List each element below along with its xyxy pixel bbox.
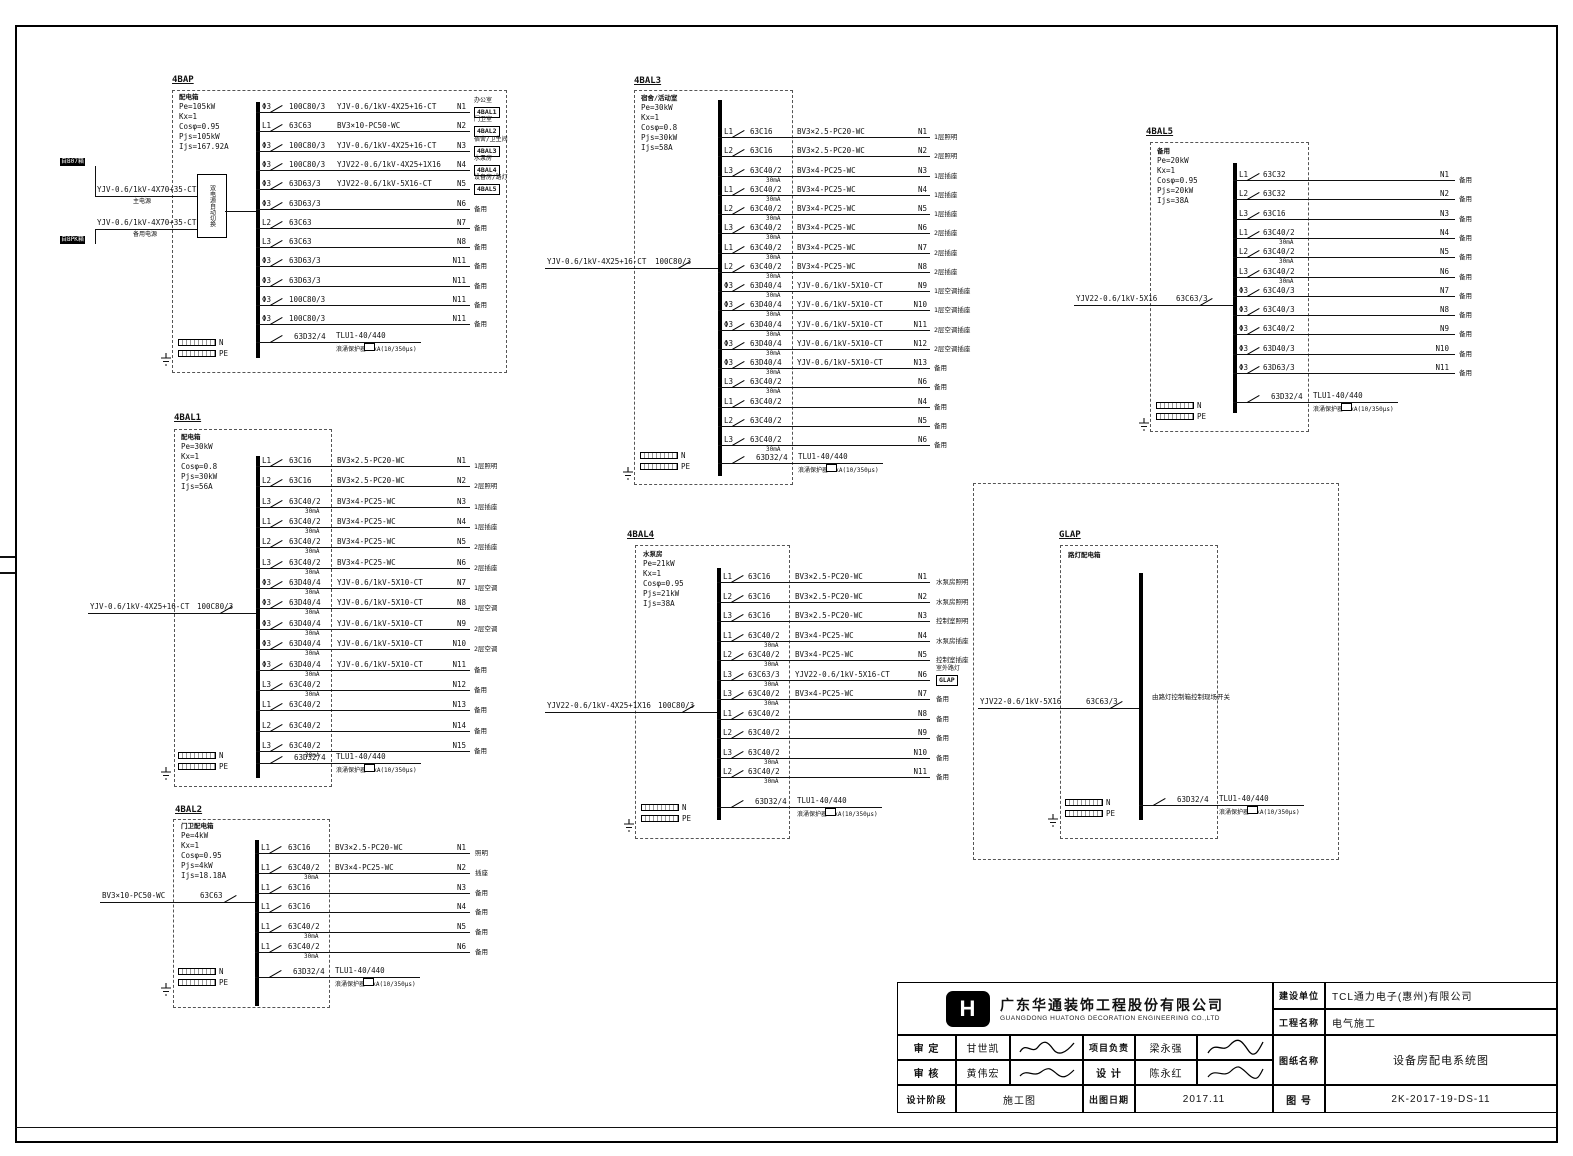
circuit-line (256, 547, 470, 548)
rcd-label: 30mA (766, 197, 780, 203)
incoming-cable-label: YJV22-0.6/1kV-4X25+1X16 (547, 702, 651, 710)
incoming-breaker-label: 63C63/3 (1086, 698, 1118, 706)
breaker-label: 63C40/2 (748, 632, 780, 640)
dest-box: 4BAL5 (474, 184, 500, 195)
surge-device-label: TLU1-40/440 (336, 753, 386, 761)
pe-bar (178, 350, 216, 357)
breaker-label: 100C80/3 (289, 103, 325, 111)
phase-label: Φ3 (724, 359, 733, 367)
panel-name: 门卫配电箱 (181, 823, 214, 830)
circuit-line (256, 507, 470, 508)
bus-bar (256, 102, 260, 358)
breaker-label: 63C16 (1263, 210, 1286, 218)
breaker-label: 63D63/3 (289, 257, 321, 265)
cable-label: BV3×2.5-PC20-WC (337, 477, 405, 485)
cable-label: BV3×2.5-PC20-WC (795, 573, 863, 581)
circuit-number: N13 (432, 701, 466, 709)
breaker-label: 63C40/2 (750, 263, 782, 271)
circuit-number: N11 (893, 768, 927, 776)
phase-label: Φ3 (262, 661, 271, 669)
load-label: 水泵房照明 (936, 579, 969, 586)
circuit-line (256, 588, 470, 589)
load-label: 水泵房插座 (936, 638, 969, 645)
circuit-number: N7 (432, 219, 466, 227)
load-label: 备用 (1459, 235, 1472, 242)
margin-tick (0, 572, 15, 574)
pe-bar (178, 979, 216, 986)
breaker-label: 63C40/2 (748, 651, 780, 659)
panel-header-line: Cosφ=0.95 (1157, 177, 1198, 185)
cable-label: YJV-0.6/1kV-5X10-CT (337, 579, 423, 587)
surge-note: 浪涌保护器40kA(10/350μs) (335, 982, 416, 988)
circuit-line (717, 621, 930, 622)
breaker-label: 63D63/3 (289, 277, 321, 285)
phase-label: L1 (1239, 229, 1248, 237)
circuit-line (718, 291, 930, 292)
breaker-label: 63C40/2 (750, 244, 782, 252)
circuit-number: N6 (893, 436, 927, 444)
breaker-label: 63D63/3 (1263, 364, 1295, 372)
circuit-number: N9 (1415, 325, 1449, 333)
circuit-number: N3 (1415, 210, 1449, 218)
rcd-label: 30mA (1279, 259, 1293, 265)
circuit-number: N8 (432, 599, 466, 607)
load-label: 1层插座 (934, 192, 957, 199)
panel-name: 水泵房 (643, 551, 663, 558)
panel-header-line: Cosφ=0.8 (181, 463, 217, 471)
circuit-number: N6 (1415, 268, 1449, 276)
load-label: 备用 (474, 748, 487, 755)
load-label: 备用 (936, 696, 949, 703)
surge-device-icon (1341, 403, 1352, 411)
panel-header-line: Pjs=4kW (181, 862, 213, 870)
surge-breaker-label: 63D32/4 (294, 333, 326, 341)
phase-label: Φ3 (262, 180, 271, 188)
pe-bar-label: PE (681, 463, 690, 471)
circuit-number: N3 (893, 612, 927, 620)
surge-line (1233, 402, 1398, 403)
breaker-label: 63C16 (750, 147, 773, 155)
load-label: 备用 (474, 206, 487, 213)
breaker-label: 63C16 (748, 612, 771, 620)
load-label: 2层空调插座 (934, 327, 970, 334)
breaker-label: 63D40/4 (289, 599, 321, 607)
phase-label: L2 (262, 722, 271, 730)
n-bar (1156, 402, 1194, 409)
rcd-label: 30mA (766, 216, 780, 222)
load-label: 备用 (934, 384, 947, 391)
project-lead-name: 梁永强 (1135, 1035, 1197, 1060)
surge-line (718, 463, 883, 464)
load-label: 备用 (1459, 351, 1472, 358)
signature-icon (1017, 1039, 1077, 1057)
phase-label: L2 (723, 768, 732, 776)
surge-breaker-label: 63D32/4 (756, 454, 788, 462)
breaker-label: 63C40/2 (289, 701, 321, 709)
circuit-line (718, 176, 930, 177)
rcd-label: 30mA (766, 332, 780, 338)
rcd-label: 30mA (764, 701, 778, 707)
load-label: 备用 (1459, 370, 1472, 377)
panel-header-line: Ijs=38A (1157, 197, 1189, 205)
circuit-line (1233, 334, 1455, 335)
n-bar-label: N (219, 752, 224, 760)
circuit-number: N1 (893, 573, 927, 581)
load-label: 1层空调插座 (934, 307, 970, 314)
cable-label: YJV22-0.6/1kV-4X25+1X16 (337, 161, 441, 169)
panel-header-line: Cosφ=0.95 (181, 852, 222, 860)
breaker-label: 63C40/2 (748, 729, 780, 737)
pe-bar (641, 815, 679, 822)
phase-label: Φ3 (262, 142, 271, 150)
issue-date-label: 出图日期 (1083, 1085, 1135, 1113)
rcd-label: 30mA (1279, 240, 1293, 246)
circuit-line (717, 777, 930, 778)
project-name-label: 工程名称 (1273, 1009, 1325, 1035)
panel-header-line: Pjs=30kW (181, 473, 217, 481)
phase-label: L1 (261, 864, 270, 872)
circuit-line (256, 486, 470, 487)
n-bar-label: N (219, 968, 224, 976)
circuit-number: N2 (432, 864, 466, 872)
source-tag: 自B07箱 (60, 158, 85, 166)
breaker-label: 63C40/2 (289, 518, 321, 526)
phase-label: Φ3 (724, 301, 733, 309)
load-label: 备用 (474, 244, 487, 251)
load-label: 2层照明 (934, 153, 957, 160)
bus-bar (1139, 573, 1143, 820)
breaker-label: 63C63 (289, 122, 312, 130)
pe-bar-label: PE (1197, 413, 1206, 421)
breaker-label: 63D40/3 (1263, 345, 1295, 353)
company-name-cn: 广东华通装饰工程股份有限公司 (1000, 995, 1224, 1015)
breaker-label: 63C40/2 (288, 943, 320, 951)
incoming-line (88, 613, 256, 614)
circuit-number: N14 (432, 722, 466, 730)
cable-label: BV3×4-PC25-WC (797, 224, 856, 232)
incoming-cable-label: BV3×10-PC50-WC (102, 892, 165, 900)
panel-name: 路灯配电箱 (1068, 552, 1101, 559)
bus-bar (717, 568, 721, 820)
breaker-label: 63C63 (289, 238, 312, 246)
approved-signature (1010, 1035, 1083, 1060)
signature-icon (1017, 1065, 1077, 1081)
phase-label: L2 (724, 205, 733, 213)
load-label: 1层插座 (474, 524, 497, 531)
phase-label: L3 (723, 749, 732, 757)
load-label: 备用 (1459, 177, 1472, 184)
ground-icon (1047, 813, 1059, 827)
incoming-cable-label: YJV-0.6/1kV-4X70+35-CT (97, 219, 196, 227)
approved-name: 甘世凯 (956, 1035, 1010, 1060)
drawing-name-label: 图纸名称 (1273, 1035, 1325, 1085)
breaker-label: 63C40/2 (289, 559, 321, 567)
circuit-number: N6 (432, 200, 466, 208)
circuit-line (256, 527, 470, 528)
incoming-source-note: 备用电源 (133, 232, 157, 238)
circuit-line (717, 660, 930, 661)
breaker-label: 100C80/3 (289, 296, 325, 304)
dest-note: 设备房/路灯 (474, 175, 508, 181)
load-label: 备用 (474, 707, 487, 714)
phase-label: Φ3 (1239, 345, 1248, 353)
circuit-number: N5 (893, 651, 927, 659)
circuit-line (718, 445, 930, 446)
load-label: 备用 (936, 774, 949, 781)
load-label: 备用 (1459, 331, 1472, 338)
circuit-number: N5 (1415, 248, 1449, 256)
breaker-label: 63C16 (748, 593, 771, 601)
incoming-stub (95, 229, 96, 244)
circuit-number: N11 (432, 277, 466, 285)
surge-device-icon (363, 978, 374, 986)
circuit-line (718, 253, 930, 254)
dest-note: 办公室 (474, 98, 492, 104)
phase-label: L2 (724, 417, 733, 425)
breaker-label: 63C16 (288, 884, 311, 892)
circuit-line (717, 641, 930, 642)
rcd-label: 30mA (305, 692, 319, 698)
surge-device-label: TLU1-40/440 (797, 797, 847, 805)
breaker-label: 63D40/4 (289, 640, 321, 648)
load-label: 控制室插座 (936, 657, 969, 664)
load-label: 备用 (934, 404, 947, 411)
phase-label: Φ3 (262, 161, 271, 169)
panel-header-line: Ijs=167.92A (179, 143, 229, 151)
bus-note: 由路灯控制箱控制现场开关 (1152, 694, 1230, 701)
company-name-en: GUANGDONG HUATONG DECORATION ENGINEERING… (1000, 1015, 1220, 1022)
pe-bar-label: PE (682, 815, 691, 823)
circuit-line (256, 629, 470, 630)
panel-title: 4BAL3 (634, 77, 661, 86)
surge-breaker-label: 63D32/4 (1177, 796, 1209, 804)
circuit-line (717, 699, 930, 700)
breaker-label: 63C40/2 (1263, 268, 1295, 276)
surge-device-label: TLU1-40/440 (1219, 795, 1269, 803)
cable-label: BV3×4-PC25-WC (795, 651, 854, 659)
load-label: 2层空调 (474, 646, 497, 653)
phase-label: Φ3 (262, 296, 271, 304)
panel-header-line: Ijs=18.18A (181, 872, 226, 880)
reviewed-label: 审 核 (897, 1060, 956, 1085)
surge-note: 浪涌保护器40kA(10/350μs) (336, 768, 417, 774)
surge-device-icon (364, 764, 375, 772)
circuit-number: N4 (893, 186, 927, 194)
rcd-label: 30mA (764, 662, 778, 668)
cable-label: BV3×4-PC25-WC (335, 864, 394, 872)
pe-bar-label: PE (1106, 810, 1115, 818)
cable-label: YJV-0.6/1kV-5X10-CT (797, 321, 883, 329)
n-bar (641, 804, 679, 811)
source-tag: 自BPK箱 (60, 236, 85, 244)
panel-header-line: Pjs=105kW (179, 133, 220, 141)
circuit-number: N6 (432, 943, 466, 951)
circuit-number: N7 (432, 579, 466, 587)
dest-note: 门卫室 (474, 117, 492, 123)
breaker-label: 63D63/3 (289, 180, 321, 188)
panel-header-line: Kx=1 (179, 113, 197, 121)
pe-bar (1156, 413, 1194, 420)
surge-line (256, 763, 421, 764)
surge-line (255, 977, 420, 978)
breaker-label: 63C40/2 (289, 681, 321, 689)
phase-label: L1 (723, 632, 732, 640)
circuit-line (1233, 219, 1455, 220)
project-lead-signature (1197, 1035, 1273, 1060)
circuit-number: N10 (1415, 345, 1449, 353)
load-label: 备用 (475, 949, 488, 956)
pe-bar-label: PE (219, 763, 228, 771)
phase-label: L3 (723, 612, 732, 620)
drawing-sheet: 4BAP配电箱Pe=105kWKx=1Cosφ=0.95Pjs=105kWIjs… (0, 0, 1573, 1156)
surge-note: 浪涌保护器40kA(10/350μs) (1219, 810, 1300, 816)
circuit-number: N2 (1415, 190, 1449, 198)
circuit-line (717, 582, 930, 583)
circuit-number: N1 (432, 844, 466, 852)
circuit-line (255, 873, 470, 874)
circuit-line (718, 137, 930, 138)
circuit-number: N12 (893, 340, 927, 348)
load-label: 备用 (474, 667, 487, 674)
circuit-number: N10 (432, 640, 466, 648)
dest-note: 室外路灯 (936, 666, 960, 672)
circuit-number: N11 (432, 315, 466, 323)
cable-label: YJV-0.6/1kV-5X10-CT (337, 620, 423, 628)
rcd-label: 30mA (764, 760, 778, 766)
circuit-line (256, 131, 470, 132)
circuit-line (255, 893, 470, 894)
breaker-label: 63C40/2 (748, 768, 780, 776)
circuit-number: N1 (432, 103, 466, 111)
cable-label: YJV-0.6/1kV-5X10-CT (797, 301, 883, 309)
load-label: 2层插座 (934, 269, 957, 276)
incoming-cable-label: YJV-0.6/1kV-4X25+16-CT (90, 603, 189, 611)
circuit-line (256, 466, 470, 467)
load-label: 备用 (475, 890, 488, 897)
phase-label: Φ3 (724, 340, 733, 348)
circuit-number: N5 (893, 205, 927, 213)
surge-breaker-label: 63D32/4 (294, 754, 326, 762)
breaker-label: 63C40/2 (750, 436, 782, 444)
load-label: 备用 (474, 728, 487, 735)
pe-bar (1065, 810, 1103, 817)
panel-name: 宿舍/活动室 (641, 95, 677, 102)
phase-label: L3 (724, 167, 733, 175)
ground-icon (160, 982, 172, 996)
n-bar (1065, 799, 1103, 806)
panel-title: 4BAL2 (175, 806, 202, 815)
cable-label: BV3×4-PC25-WC (795, 632, 854, 640)
incoming-cable-label: YJV-0.6/1kV-4X70+35-CT (97, 186, 196, 194)
incoming-cable-label: YJV22-0.6/1kV-5X16 (980, 698, 1061, 706)
n-bar (640, 452, 678, 459)
cable-label: BV3×4-PC25-WC (795, 690, 854, 698)
cable-label: BV3×4-PC25-WC (797, 263, 856, 271)
panel-header-line: Kx=1 (181, 842, 199, 850)
company-logo-icon: H (946, 991, 990, 1027)
reviewed-name: 黄伟宏 (956, 1060, 1010, 1085)
breaker-label: 63D40/4 (289, 620, 321, 628)
load-label: 备用 (936, 716, 949, 723)
load-label: 1层照明 (474, 463, 497, 470)
inner-border-line (15, 1127, 1556, 1128)
rcd-label: 30mA (304, 875, 318, 881)
phase-label: L3 (262, 498, 271, 506)
n-bar-label: N (1106, 799, 1111, 807)
circuit-line (256, 608, 470, 609)
panel-header-line: Kx=1 (641, 114, 659, 122)
breaker-label: 63C63/3 (748, 671, 780, 679)
phase-label: L3 (723, 671, 732, 679)
circuit-number: N11 (432, 661, 466, 669)
breaker-label: 63D63/3 (289, 200, 321, 208)
cable-label: YJV-0.6/1kV-5X10-CT (337, 640, 423, 648)
load-label: 备用 (936, 735, 949, 742)
circuit-line (718, 426, 930, 427)
drawing-number-value: 2K-2017-19-DS-11 (1325, 1085, 1557, 1113)
project-name-value: 电气施工 (1325, 1009, 1557, 1035)
circuit-line (717, 680, 930, 681)
circuit-number: N10 (893, 301, 927, 309)
circuit-line (256, 170, 470, 171)
surge-device-icon (1247, 806, 1258, 814)
cable-label: YJV-0.6/1kV-5X10-CT (797, 282, 883, 290)
circuit-number: N6 (893, 671, 927, 679)
phase-label: L1 (262, 457, 271, 465)
circuit-number: N6 (432, 559, 466, 567)
company-cell: H 广东华通装饰工程股份有限公司 GUANGDONG HUATONG DECOR… (897, 982, 1273, 1035)
circuit-number: N8 (893, 710, 927, 718)
panel-header-line: Kx=1 (181, 453, 199, 461)
circuit-line (1233, 199, 1455, 200)
load-label: 备用 (474, 687, 487, 694)
circuit-line (717, 738, 930, 739)
cable-label: YJV-0.6/1kV-4X25+16-CT (337, 142, 436, 150)
panel-title: 4BAL1 (174, 414, 201, 423)
panel-header-line: Pjs=20kW (1157, 187, 1193, 195)
phase-label: L3 (724, 224, 733, 232)
phase-label: Φ3 (262, 277, 271, 285)
panel-name: 备用 (1157, 148, 1170, 155)
surge-device-label: TLU1-40/440 (335, 967, 385, 975)
breaker-label: 100C80/3 (289, 315, 325, 323)
circuit-line (718, 214, 930, 215)
phase-label: L2 (262, 477, 271, 485)
surge-note: 浪涌保护器40kA(10/350μs) (797, 812, 878, 818)
panel-header-line: Pe=20kW (1157, 157, 1189, 165)
phase-label: L2 (262, 538, 271, 546)
panel-header-line: Pjs=21kW (643, 590, 679, 598)
circuit-number: N3 (432, 142, 466, 150)
rcd-label: 30mA (764, 779, 778, 785)
bus-bar (255, 840, 259, 1006)
incoming-breaker-label: 63C63/3 (1176, 295, 1208, 303)
circuit-line (1233, 257, 1455, 258)
surge-breaker-label: 63D32/4 (755, 798, 787, 806)
panel-header-line: Kx=1 (643, 570, 661, 578)
breaker-label: 63C40/2 (750, 205, 782, 213)
ground-icon (623, 818, 635, 832)
pe-bar-label: PE (219, 979, 228, 987)
circuit-number: N3 (893, 167, 927, 175)
surge-note: 浪涌保护器40kA(10/350μs) (1313, 407, 1394, 413)
panel-name: 配电箱 (181, 434, 201, 441)
pe-bar (640, 463, 678, 470)
circuit-line (256, 710, 470, 711)
circuit-line (256, 286, 470, 287)
panel-title: 4BAL5 (1146, 128, 1173, 137)
signature-icon (1204, 1065, 1266, 1081)
